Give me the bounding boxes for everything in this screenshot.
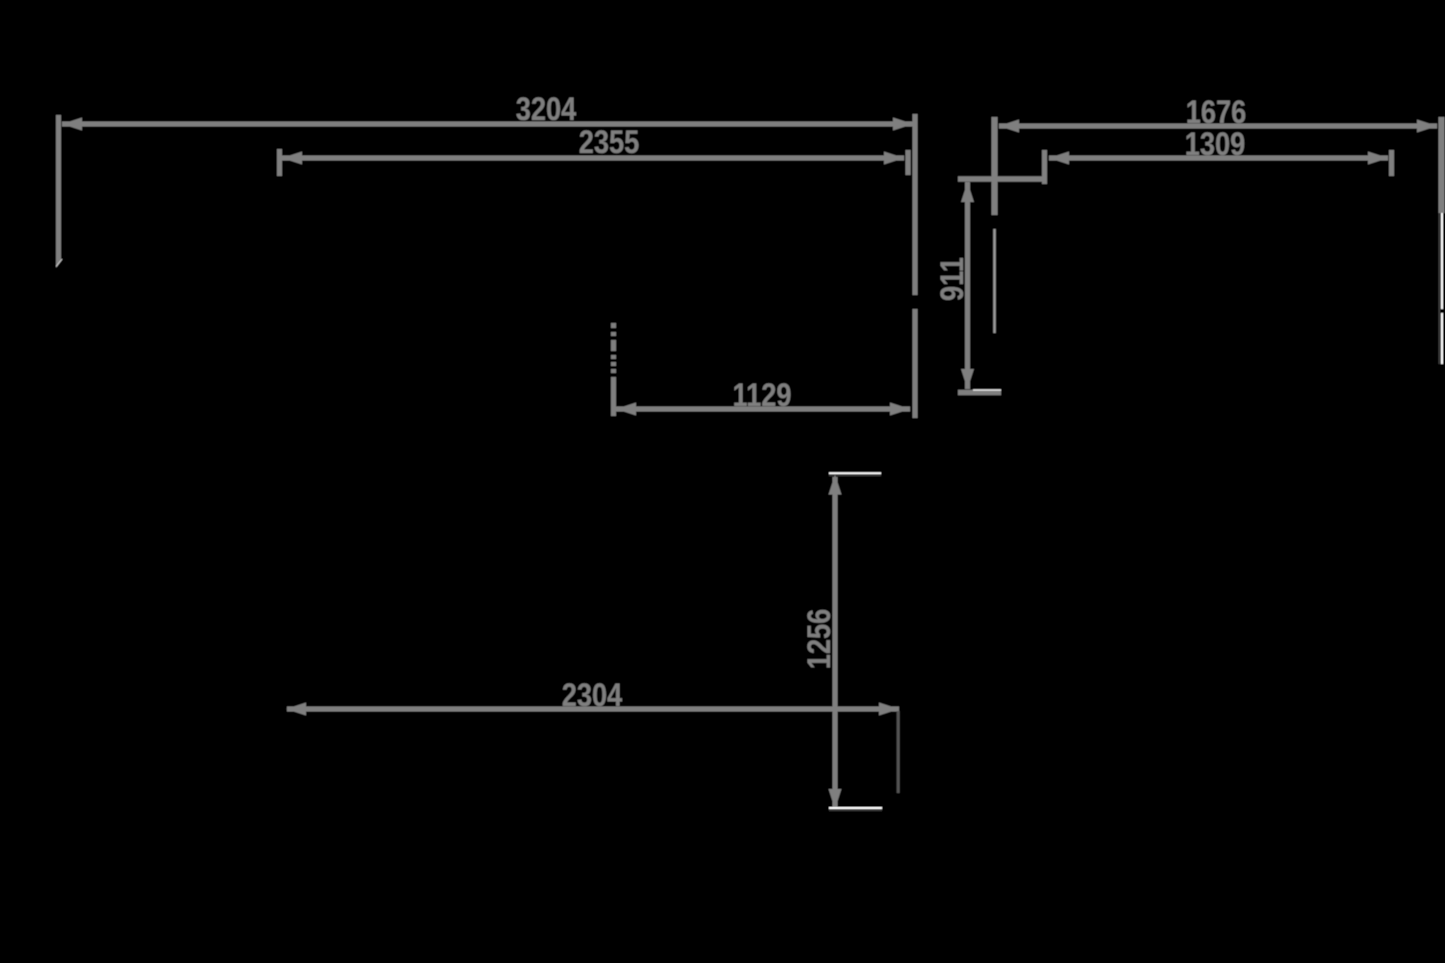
svg-text:911: 911 <box>935 257 971 301</box>
svg-text:2355: 2355 <box>579 125 639 161</box>
svg-text:2304: 2304 <box>562 678 623 714</box>
svg-text:1676: 1676 <box>1186 95 1246 131</box>
svg-text:1309: 1309 <box>1185 127 1245 163</box>
svg-text:3204: 3204 <box>516 92 577 128</box>
svg-text:1129: 1129 <box>733 378 792 414</box>
svg-text:1256: 1256 <box>802 609 838 669</box>
